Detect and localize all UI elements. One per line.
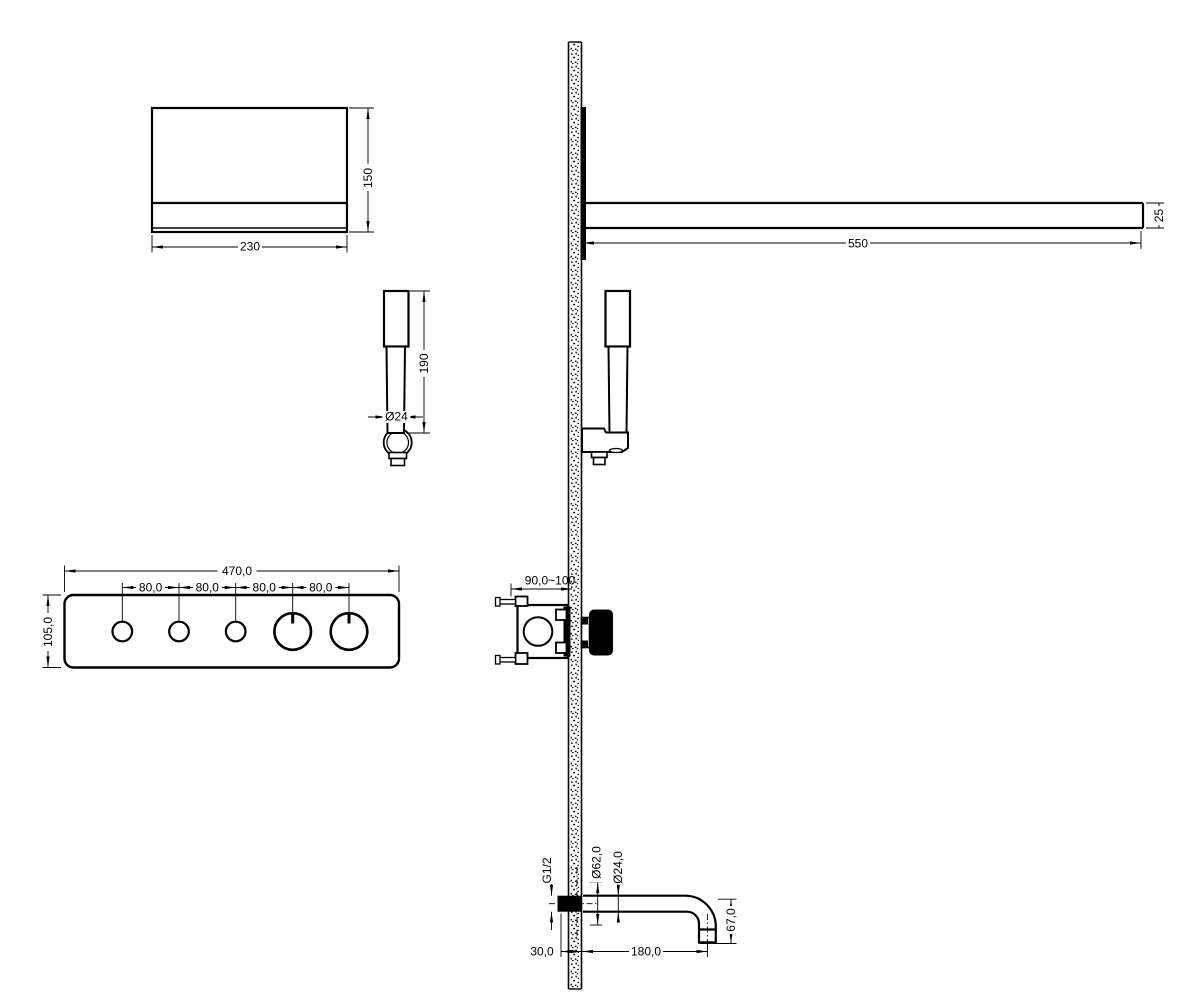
handshower-head-side: [606, 291, 631, 347]
dim-spout-reach: 30,0 180,0: [530, 914, 707, 959]
handshower-handle-side: [609, 347, 628, 434]
dim-label-80-2: 80,0: [196, 580, 220, 594]
small-knob-3: [226, 622, 246, 642]
valve-cartridge: [524, 617, 553, 646]
handshower-head: [384, 291, 409, 347]
holder-outlet: [592, 452, 608, 458]
mount-tab-bottom: [516, 653, 528, 664]
spout-thread-connector: [558, 896, 582, 912]
spout-side-view: G1/2 Ø62,0 Ø24,0 67,0: [530, 843, 738, 959]
mount-screw-top: [496, 598, 501, 607]
dim-label-80-1: 80,0: [139, 580, 163, 594]
dim-label-90-100: 90,0~100: [525, 574, 576, 588]
dim-label-g12: G1/2: [540, 857, 554, 883]
small-knob-2: [169, 622, 189, 642]
dim-label-230: 230: [240, 240, 260, 254]
dim-label-25: 25: [1152, 209, 1166, 223]
showerhead-body: [152, 108, 347, 232]
arm-wall-plate: [581, 107, 587, 260]
valve-knob: [589, 610, 613, 656]
handshower-side-view: [582, 291, 630, 465]
dim-label-80-4: 80,0: [309, 580, 333, 594]
valve-side-view: 90,0~100: [496, 574, 614, 665]
dim-label-105: 105,0: [41, 617, 55, 647]
dim-showerhead-width: 230: [152, 235, 347, 254]
dim-arm-thickness: 25: [1146, 203, 1166, 228]
dim-label-80-3: 80,0: [253, 580, 277, 594]
wall-section: [569, 42, 582, 989]
dim-valve-depth: 90,0~100: [511, 574, 576, 597]
mount-tab-top: [516, 597, 528, 607]
spout-outer-curve: [685, 896, 716, 943]
control-panel-front-view: 470,0 80,0 80,0 80,0 80,0 105,0: [41, 564, 399, 668]
spout-inner-curve: [687, 912, 699, 943]
dim-arm-length: 550: [583, 231, 1141, 251]
dim-label-d24-spout: Ø24,0: [611, 851, 625, 884]
technical-drawing-canvas: 230 150 550 25: [0, 0, 1198, 1003]
dim-label-470: 470,0: [222, 564, 252, 578]
dim-handshower-diameter: Ø24: [368, 410, 423, 424]
mount-screw-bottom: [496, 656, 501, 665]
handshower-front-view: Ø24 190: [368, 291, 431, 466]
dim-label-190: 190: [417, 353, 431, 373]
dim-label-d24: Ø24: [385, 410, 408, 424]
small-knob-1: [113, 622, 133, 642]
dim-spout-drop: 67,0: [700, 899, 738, 943]
dim-label-550: 550: [848, 237, 868, 251]
dim-spout-thread: G1/2: [540, 857, 554, 930]
dim-label-180: 180,0: [631, 945, 661, 959]
dim-label-67: 67,0: [724, 908, 738, 932]
shower-arm-side-view: 550 25: [581, 107, 1167, 260]
showerhead-front-view: 230 150: [152, 108, 375, 254]
hanging-ring-inner: [387, 432, 409, 454]
dim-label-d62: Ø62,0: [589, 846, 603, 879]
dim-label-150: 150: [361, 168, 375, 188]
dim-label-30: 30,0: [530, 945, 554, 959]
wall-hatch: [569, 42, 582, 989]
dim-showerhead-height: 150: [349, 108, 375, 232]
dim-panel-height: 105,0: [41, 595, 61, 668]
